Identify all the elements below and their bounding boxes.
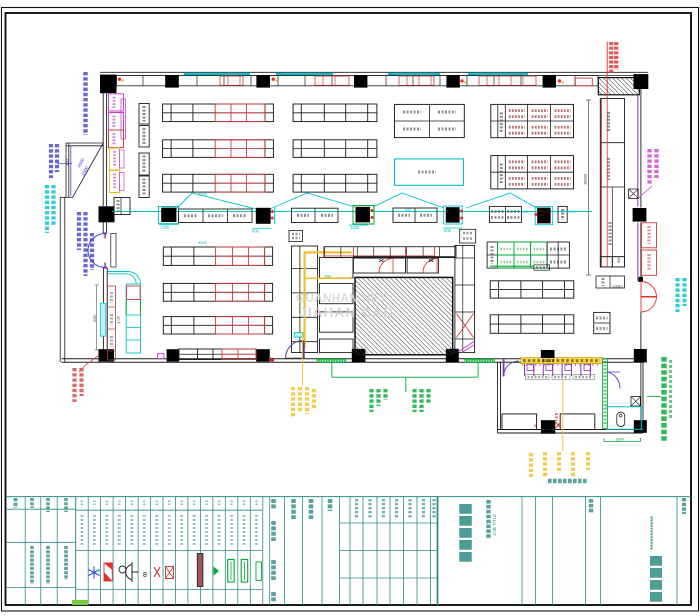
- svg-text:600: 600: [444, 228, 452, 233]
- svg-text:18000: 18000: [583, 173, 588, 185]
- svg-text:1500: 1500: [350, 225, 360, 230]
- svg-text:900: 900: [617, 257, 621, 263]
- svg-text:4500: 4500: [198, 192, 208, 197]
- svg-text:750: 750: [324, 274, 331, 279]
- svg-text:4500: 4500: [198, 240, 208, 245]
- svg-text:1500: 1500: [160, 225, 170, 230]
- svg-text:FM: FM: [96, 569, 101, 573]
- svg-text:450: 450: [405, 208, 411, 212]
- svg-text:1.03: 1.03: [116, 315, 121, 324]
- svg-text:8: 8: [143, 572, 147, 579]
- svg-text:200: 200: [92, 315, 97, 322]
- svg-text:GUANHAN NET: GUANHAN NET: [296, 293, 386, 305]
- svg-text:JIAHAN CAD: JIAHAN CAD: [299, 305, 394, 320]
- svg-text:************: ************: [648, 515, 658, 550]
- svg-text:1.03m: 1.03m: [612, 285, 623, 289]
- svg-text:300: 300: [65, 159, 70, 166]
- svg-text:1500: 1500: [615, 437, 625, 442]
- svg-text:600: 600: [522, 210, 528, 214]
- svg-text:JOB TITLE: JOB TITLE: [492, 514, 497, 536]
- svg-text:600: 600: [252, 229, 260, 234]
